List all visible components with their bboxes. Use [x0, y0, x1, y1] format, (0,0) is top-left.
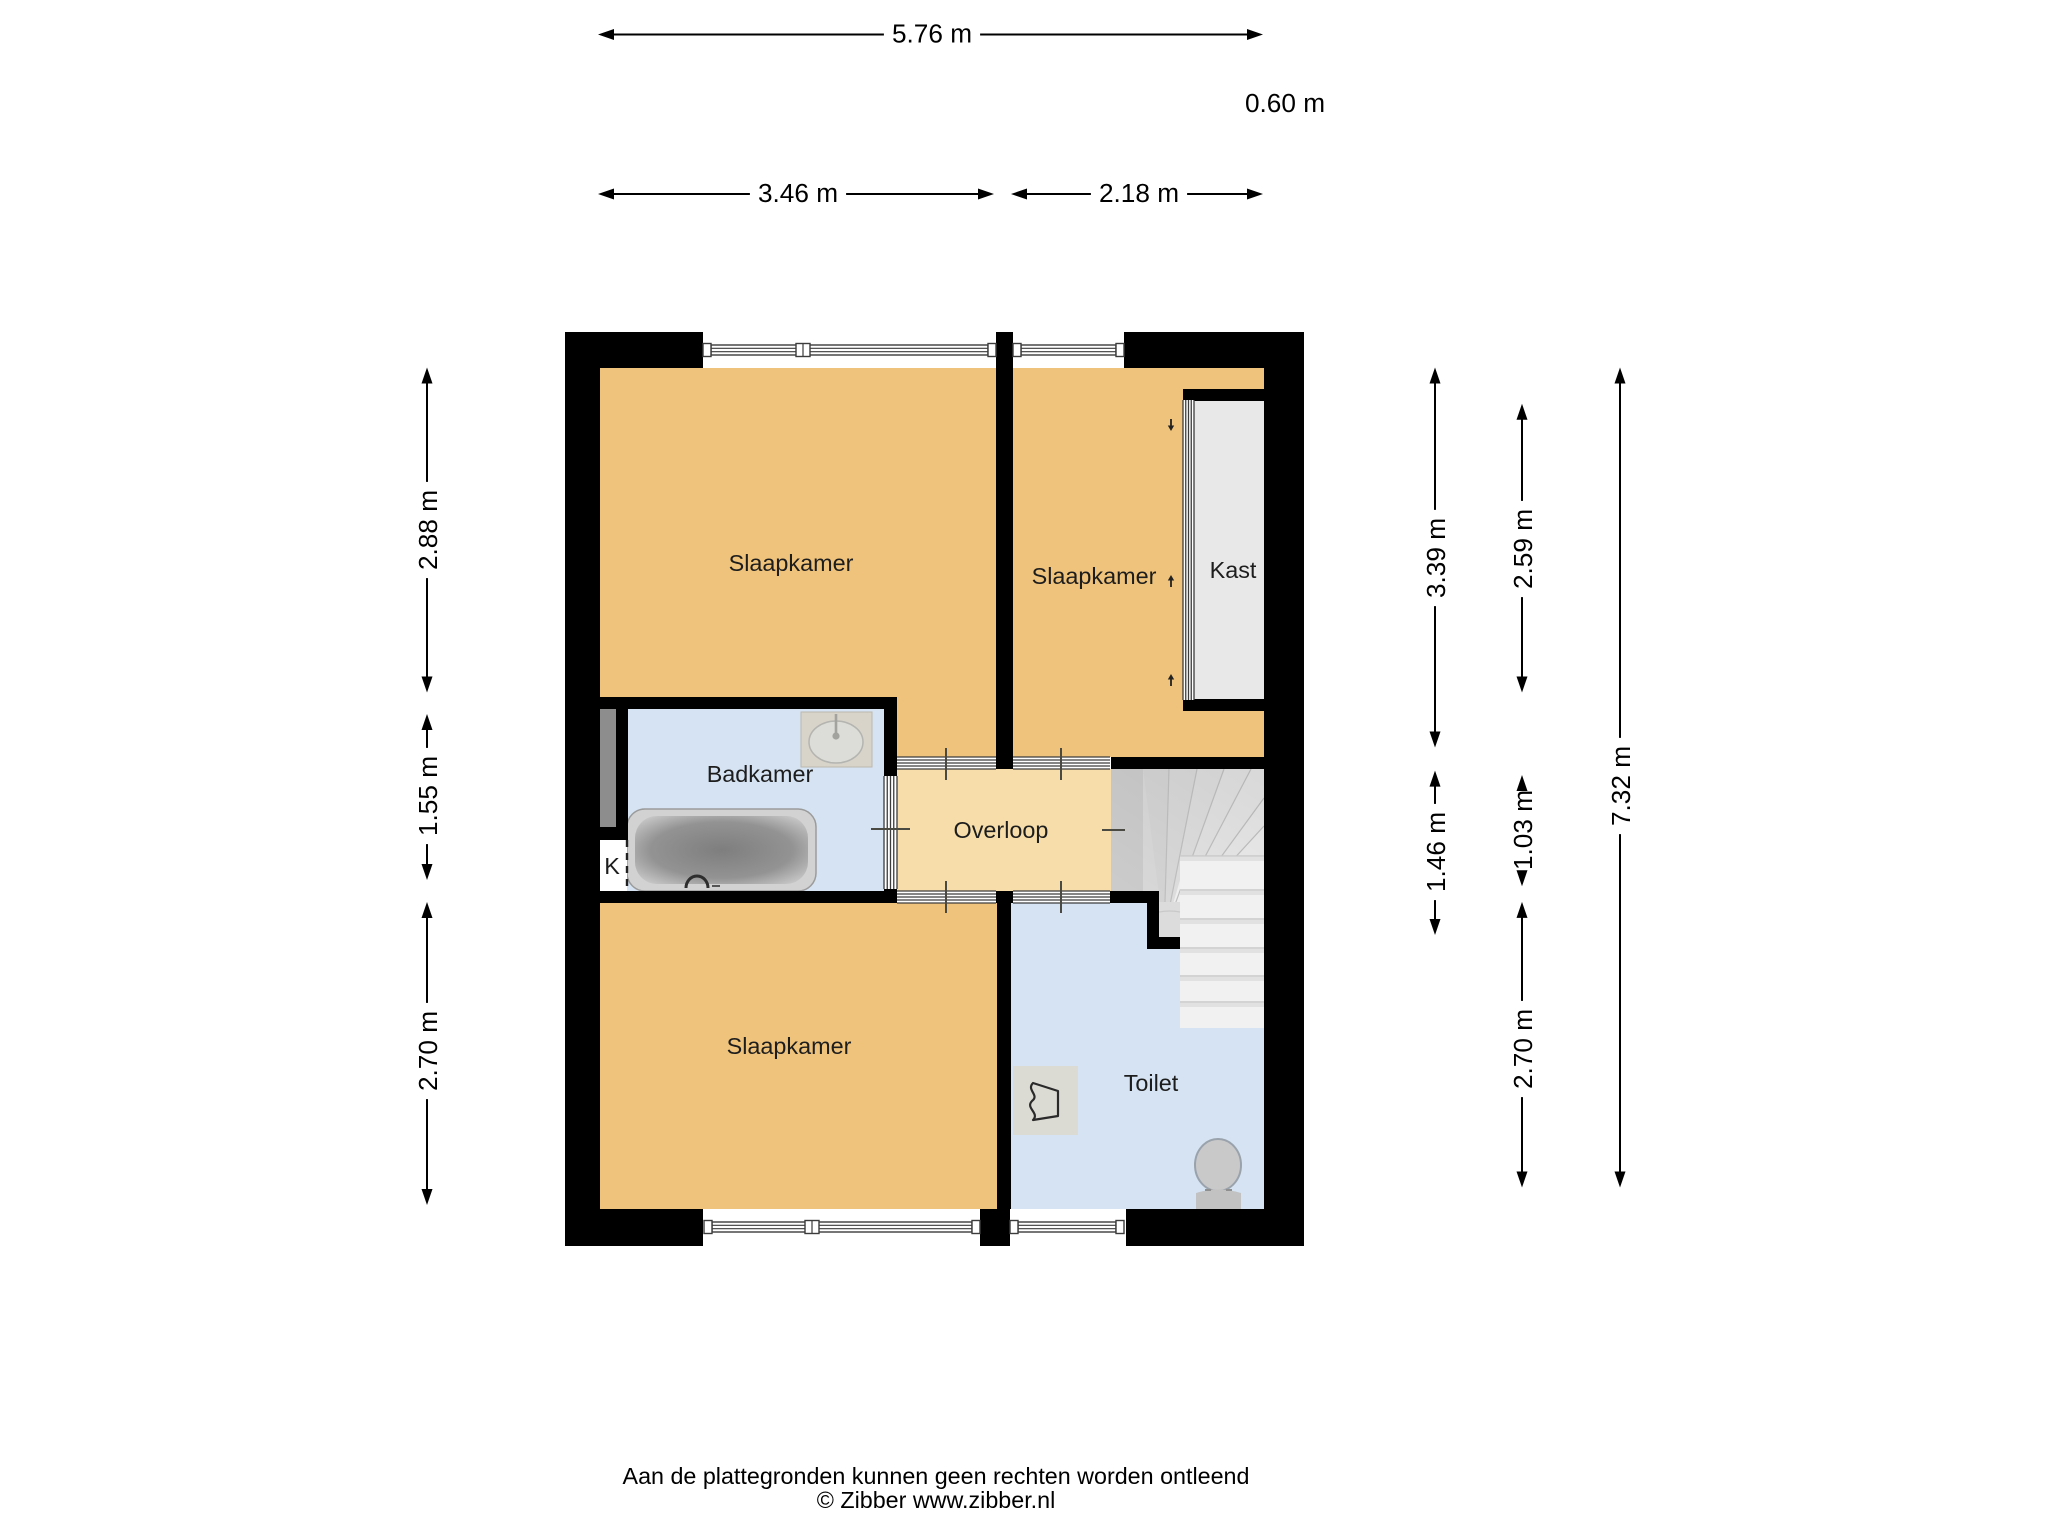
svg-text:1.46 m: 1.46 m [1421, 812, 1451, 892]
svg-text:Slaapkamer: Slaapkamer [1032, 563, 1157, 589]
svg-text:1.55 m: 1.55 m [413, 756, 443, 836]
svg-text:Toilet: Toilet [1124, 1070, 1179, 1096]
svg-text:© Zibber www.zibber.nl: © Zibber www.zibber.nl [817, 1487, 1056, 1513]
svg-text:Aan de plattegronden kunnen ge: Aan de plattegronden kunnen geen rechten… [623, 1463, 1250, 1489]
svg-text:2.18 m: 2.18 m [1099, 178, 1179, 208]
svg-text:3.39 m: 3.39 m [1421, 518, 1451, 598]
svg-text:Badkamer: Badkamer [707, 761, 814, 787]
svg-text:0.60 m: 0.60 m [1245, 88, 1325, 118]
svg-text:2.59 m: 2.59 m [1508, 509, 1538, 589]
svg-text:7.32 m: 7.32 m [1606, 746, 1636, 826]
svg-text:2.70 m: 2.70 m [1508, 1009, 1538, 1089]
svg-text:2.88 m: 2.88 m [413, 490, 443, 570]
svg-text:1.03 m: 1.03 m [1508, 790, 1538, 870]
svg-text:3.46 m: 3.46 m [758, 178, 838, 208]
svg-text:Slaapkamer: Slaapkamer [727, 1033, 852, 1059]
svg-text:Overloop: Overloop [954, 817, 1049, 843]
svg-text:2.70 m: 2.70 m [413, 1011, 443, 1091]
svg-text:Slaapkamer: Slaapkamer [729, 550, 854, 576]
svg-text:K: K [604, 853, 620, 879]
svg-text:5.76 m: 5.76 m [892, 19, 972, 49]
svg-text:Kast: Kast [1210, 557, 1257, 583]
